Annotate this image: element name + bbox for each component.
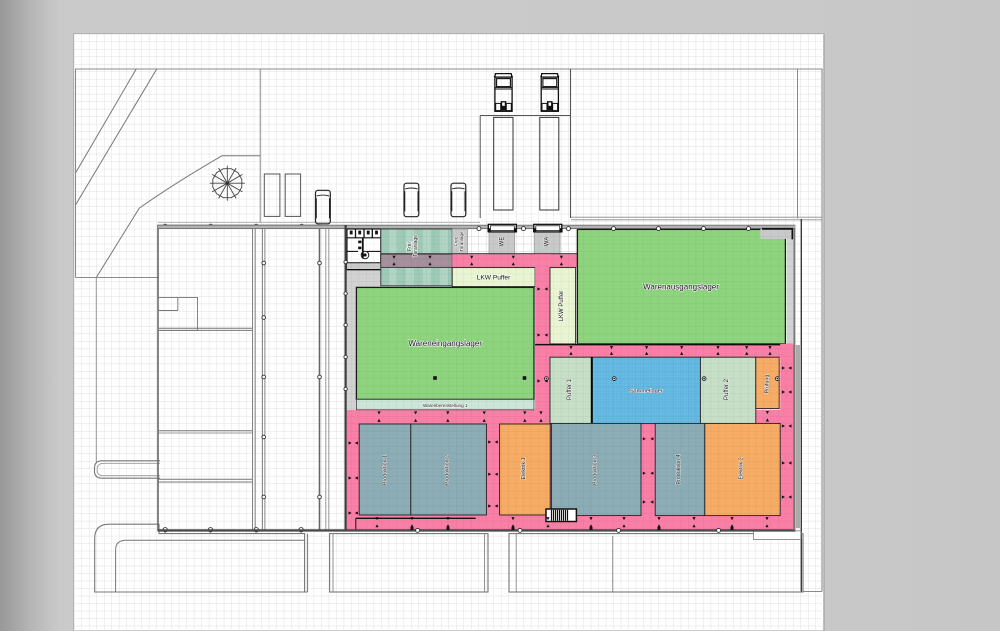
svg-text:Elektrik 2: Elektrik 2 (739, 457, 745, 479)
svg-text:Elektrik 1: Elektrik 1 (521, 457, 527, 479)
svg-text:Puffer 1: Puffer 1 (567, 378, 573, 400)
svg-text:WE: WE (499, 237, 505, 247)
svg-text:Warenausgangslager: Warenausgangslager (643, 283, 719, 292)
svg-text:Produktion 3: Produktion 3 (592, 455, 598, 485)
svg-text:Sammellager: Sammellager (630, 388, 663, 394)
svg-text:LKW Puffer: LKW Puffer (477, 275, 511, 282)
svg-text:Warenbereitstellung 1: Warenbereitstellung 1 (423, 403, 468, 408)
svg-text:Frei,: Frei, (454, 237, 459, 246)
svg-text:Produktion 2: Produktion 2 (445, 455, 451, 485)
svg-text:Prüfung: Prüfung (765, 375, 771, 394)
svg-text:LKW Puffer: LKW Puffer (559, 291, 565, 322)
svg-text:Wareneingangslager: Wareneingangslager (408, 339, 482, 348)
svg-text:WA: WA (545, 237, 551, 246)
svg-text:Produktion 4: Produktion 4 (676, 454, 682, 484)
svg-text:Toranlage: Toranlage (413, 235, 419, 257)
svg-text:Produktion 1: Produktion 1 (382, 455, 388, 485)
svg-text:Puffer 2: Puffer 2 (724, 378, 730, 400)
svg-text:Toranlage: Toranlage (459, 231, 464, 252)
